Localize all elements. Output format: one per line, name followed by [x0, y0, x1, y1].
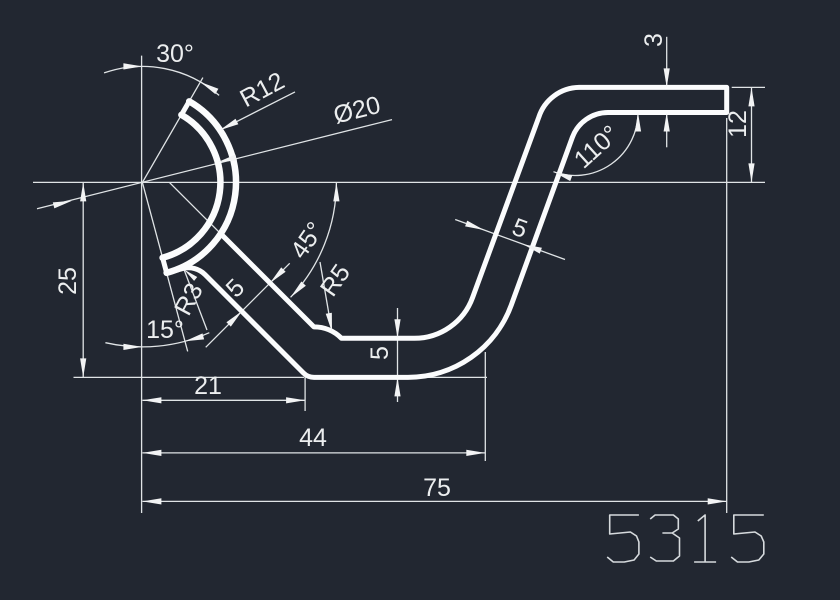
svg-text:21: 21	[194, 372, 222, 400]
svg-text:75: 75	[423, 474, 451, 502]
svg-text:44: 44	[299, 424, 327, 452]
svg-text:30°: 30°	[156, 40, 194, 68]
svg-text:3: 3	[640, 33, 668, 47]
svg-text:5: 5	[366, 346, 394, 360]
svg-text:25: 25	[54, 267, 82, 295]
svg-text:12: 12	[724, 110, 752, 138]
svg-text:15°: 15°	[146, 316, 184, 344]
